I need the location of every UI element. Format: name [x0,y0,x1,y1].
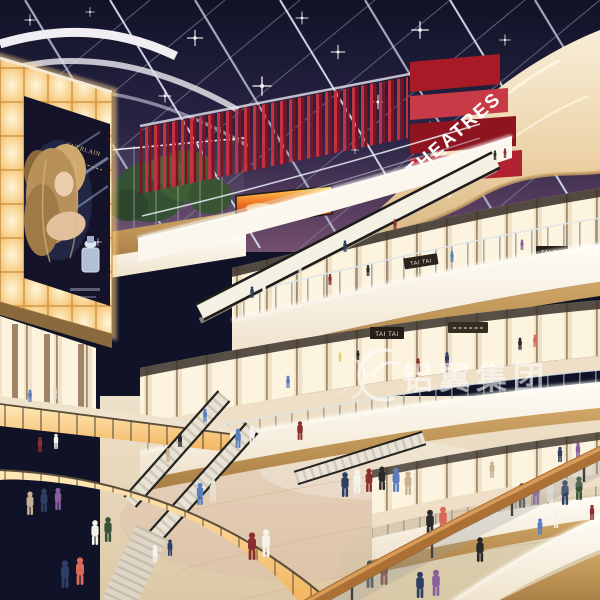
watermark-label: 铝翼集团 [402,361,550,396]
person-figure [91,520,98,545]
person-figure [76,557,84,585]
person-figure [41,489,48,512]
person-figure [38,437,42,452]
store-sign-blank [448,322,488,333]
billboard-ad: GUERLAIN [24,96,110,306]
store-sign-label: TAI TAI [375,332,399,338]
store-sign: TAI TAI [370,327,404,339]
person-figure [61,560,69,588]
person-figure [54,434,58,449]
scene-canvas: THEATRES TAI TAI [0,0,600,600]
person-figure [27,492,34,515]
person-figure [55,488,61,510]
mall-atrium-rendering: THEATRES TAI TAI [0,0,600,600]
